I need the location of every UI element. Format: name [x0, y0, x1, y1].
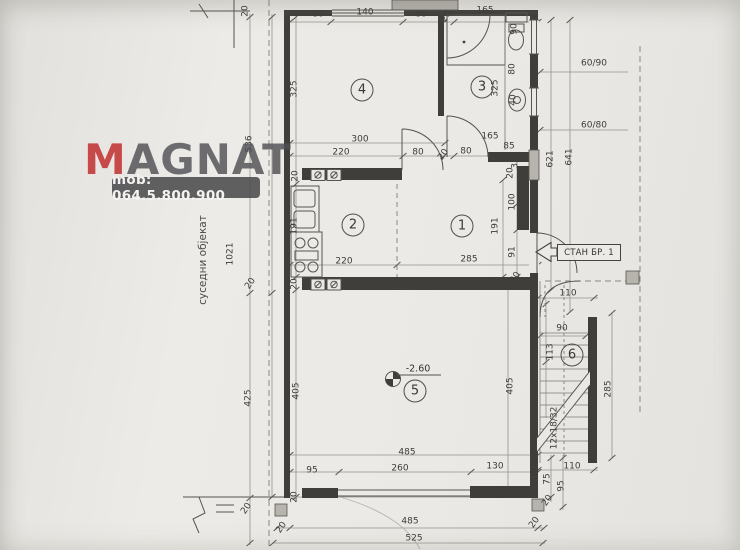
- dimension-label: 525: [405, 535, 422, 544]
- annotation-layer: суседни објекат -2.60 СТАН БР. 1 8014080…: [0, 0, 740, 550]
- dimension-label: 20: [292, 170, 301, 181]
- dimension-label: 85: [503, 143, 514, 152]
- floor-plan-photo: суседни објекат -2.60 СТАН БР. 1 8014080…: [0, 0, 740, 550]
- room-number-1: 1: [451, 215, 474, 238]
- dimension-label: 20: [509, 271, 523, 286]
- dimension-label: 20: [242, 5, 251, 16]
- dimension-label: 325: [291, 80, 300, 97]
- dimension-label: 20: [528, 516, 542, 531]
- room-number-5: 5: [404, 380, 427, 403]
- dimension-label: 75: [544, 473, 553, 484]
- dimension-label: 285: [605, 380, 614, 397]
- dimension-label: 20: [291, 278, 300, 289]
- dimension-label: 80: [460, 148, 471, 157]
- dimension-label: 1021: [227, 243, 236, 266]
- room-number-2: 2: [342, 214, 365, 237]
- dimension-label: 95: [306, 467, 317, 476]
- dimension-label: 260: [391, 465, 408, 474]
- dimension-label: 165: [481, 133, 498, 142]
- dimension-label: 641: [566, 148, 575, 165]
- dimension-label: 20: [507, 167, 516, 178]
- dimension-label: 220: [332, 149, 349, 158]
- dimension-label: 20: [437, 148, 451, 163]
- dimension-label: 110: [559, 290, 576, 299]
- dimension-label: 20: [240, 502, 254, 517]
- dimension-label: 485: [398, 449, 415, 458]
- dimension-label: 485: [401, 518, 418, 527]
- dimension-label: 20: [244, 277, 258, 292]
- room-number-4: 4: [351, 79, 374, 102]
- dimension-label: 165: [476, 7, 493, 16]
- dimension-label: 90: [556, 325, 567, 334]
- dimension-label: 405: [507, 377, 516, 394]
- dimension-label: 621: [547, 150, 556, 167]
- dimension-label: 91: [509, 246, 518, 257]
- dimension-label: 90: [511, 23, 520, 34]
- dimension-label: 95: [558, 480, 567, 491]
- dimension-label: 100: [509, 193, 518, 210]
- dimension-label: 110: [563, 463, 580, 472]
- dimension-label: 80: [415, 11, 426, 20]
- dimension-label: 60/90: [581, 60, 607, 69]
- dimension-label: 80: [509, 63, 518, 74]
- dimension-label: 20: [440, 10, 454, 25]
- dimension-label: 20: [541, 494, 555, 509]
- dimension-label: 20: [291, 491, 300, 502]
- room-number-3: 3: [471, 76, 494, 99]
- dimension-label: 80: [412, 149, 423, 158]
- dimension-label: 130: [486, 463, 503, 472]
- dimension-label: 80: [312, 11, 323, 20]
- phone-banner: mob: 064.5.800.900: [112, 177, 260, 198]
- dimension-label: 12x18/32: [551, 407, 560, 450]
- dimension-label: 425: [245, 389, 254, 406]
- dimension-label: 113: [547, 343, 556, 360]
- dimension-label: 40: [510, 94, 519, 105]
- apartment-tag: СТАН БР. 1: [557, 244, 621, 261]
- dimension-label: 191: [492, 217, 501, 234]
- dimension-label: 60/80: [581, 122, 607, 131]
- neighbor-building-label: суседни објекат: [197, 215, 209, 305]
- room-number-6: 6: [561, 344, 584, 367]
- dimension-label: 220: [335, 258, 352, 267]
- dimension-label: 20: [275, 521, 289, 536]
- elevation-label: -2.60: [406, 364, 431, 375]
- dimension-label: 285: [460, 256, 477, 265]
- dimension-label: 405: [293, 382, 302, 399]
- dimension-label: 300: [351, 136, 368, 145]
- dimension-label: 140: [356, 9, 373, 18]
- dimension-label: 191: [291, 217, 300, 234]
